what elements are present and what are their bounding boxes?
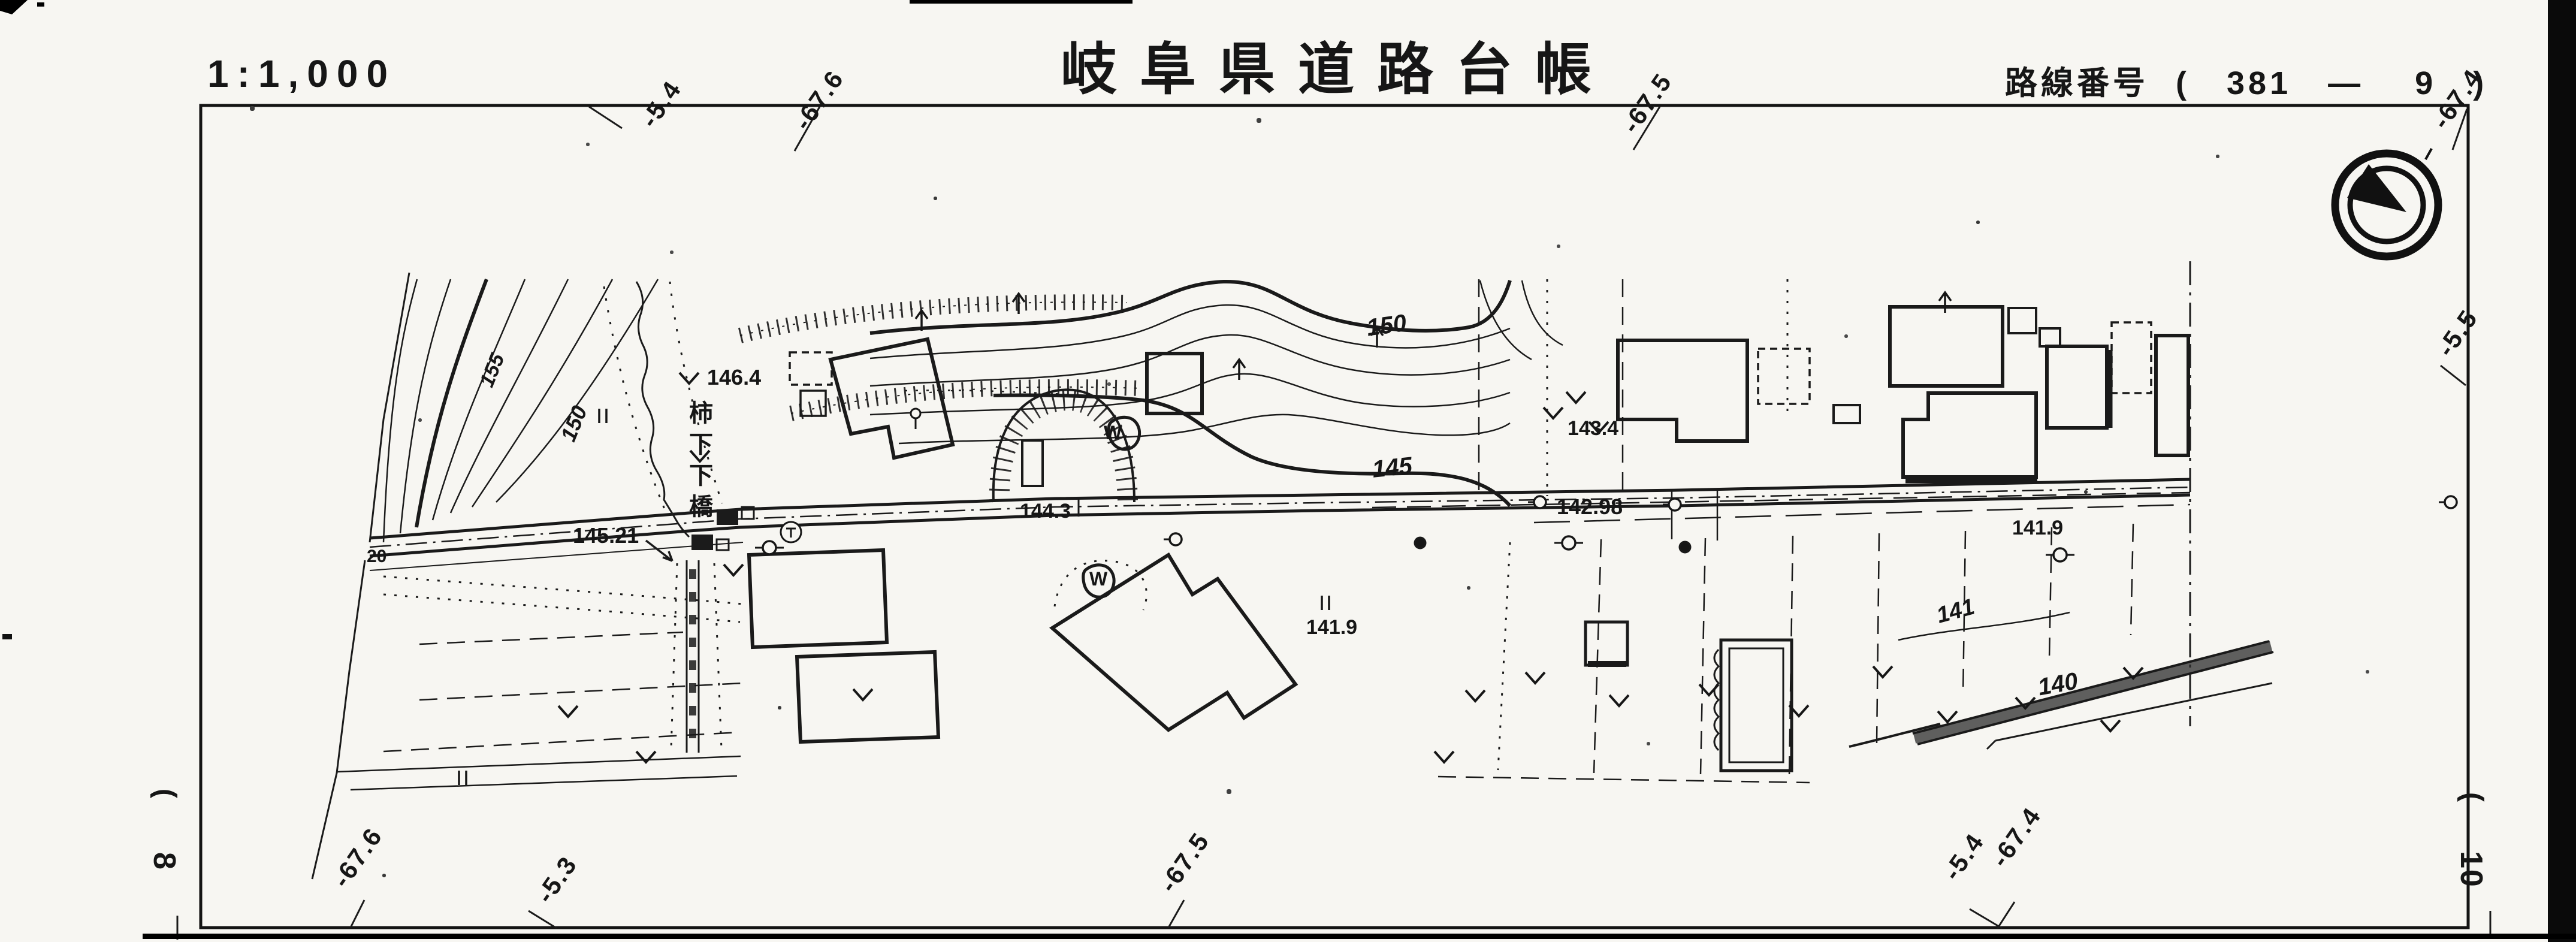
scan-speckle-noise [0, 0, 1, 1]
map-symbol-pines [1939, 292, 1951, 313]
buildings-south [749, 550, 1792, 771]
north-arrow-icon [2335, 149, 2438, 256]
route-number-label: 路線番号 [2005, 56, 2149, 104]
route-paren-close: ) [2473, 65, 2487, 102]
map-frame [201, 105, 2468, 928]
map-symbol-ominus [1554, 536, 1583, 549]
map-symbol-balloons [911, 409, 920, 429]
map-symbol-dots [1415, 538, 1426, 548]
road-ledger-sheet: 1:1,000 岐阜県道路台帳 路線番号 ( 381 — 9 ) -5.4-67… [0, 0, 2576, 942]
map-symbol-pipes [599, 409, 606, 423]
main-road [370, 479, 2190, 570]
map-symbol-checks [1544, 407, 1563, 418]
buildings-north [790, 307, 2188, 479]
parcel-lines [337, 279, 2133, 790]
map-symbol-checks [1566, 392, 1586, 403]
map-symbol-checks [1589, 422, 1608, 433]
map-symbol-checks [558, 706, 578, 717]
map-symbol-pines [1371, 327, 1383, 348]
map-symbol-pines [1013, 294, 1025, 314]
map-symbol-checks [1466, 690, 1485, 701]
diagonal-road [1849, 612, 2273, 749]
map-symbol-checks [2101, 720, 2120, 731]
contours-center [870, 280, 1563, 506]
map-content [312, 261, 2457, 879]
map-symbol-checks [853, 689, 872, 700]
map-symbol-pipes [459, 771, 466, 785]
map-symbol-checks [680, 373, 699, 384]
map-symbol-checks [1526, 672, 1545, 683]
map-symbol-checks [690, 451, 709, 461]
map-symbol-checks [1938, 711, 1957, 722]
map-symbol-pines [1233, 360, 1245, 380]
mound [993, 390, 1134, 502]
map-symbol-tpole [781, 522, 801, 542]
map-symbol-checks [1609, 695, 1629, 706]
contours-hill-left [383, 279, 658, 542]
route-number-value: 381 [2227, 65, 2291, 102]
map-symbol-checks [1435, 751, 1454, 762]
map-symbol-poles [1164, 533, 1182, 545]
map-symbol-poles [2439, 496, 2457, 508]
map-scale: 1:1,000 [207, 52, 396, 96]
page-title: 岐阜県道路台帳 [1061, 24, 1606, 105]
map-symbol-poles [1663, 499, 1681, 511]
map-symbol-dots [1680, 542, 1690, 552]
map-canvas [0, 0, 2576, 942]
grid-edge-ticks [177, 107, 2490, 940]
route-paren-open: ( [2176, 65, 2190, 102]
map-symbol-checks [724, 564, 743, 575]
route-number: 路線番号 ( 381 — 9 ) [2005, 56, 2487, 104]
map-symbol-checks [1873, 666, 1892, 677]
route-branch-value: 9 [2415, 65, 2436, 102]
map-symbol-pipes [1322, 596, 1329, 610]
map-symbol-ominus [2046, 548, 2074, 561]
content-boundary [312, 261, 2190, 879]
route-number-dash: — [2328, 65, 2364, 102]
